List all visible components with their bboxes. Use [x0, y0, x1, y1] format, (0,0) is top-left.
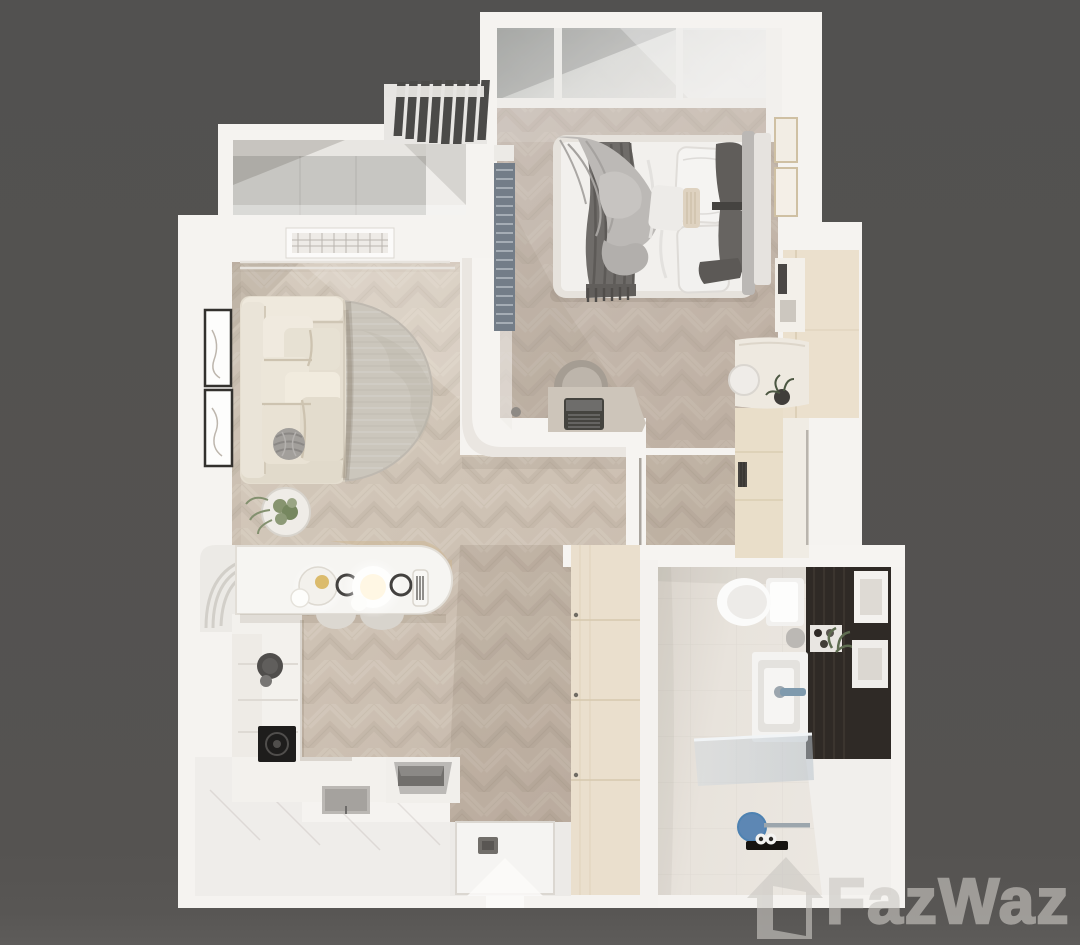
svg-text:FazWaz: FazWaz — [826, 865, 1070, 937]
